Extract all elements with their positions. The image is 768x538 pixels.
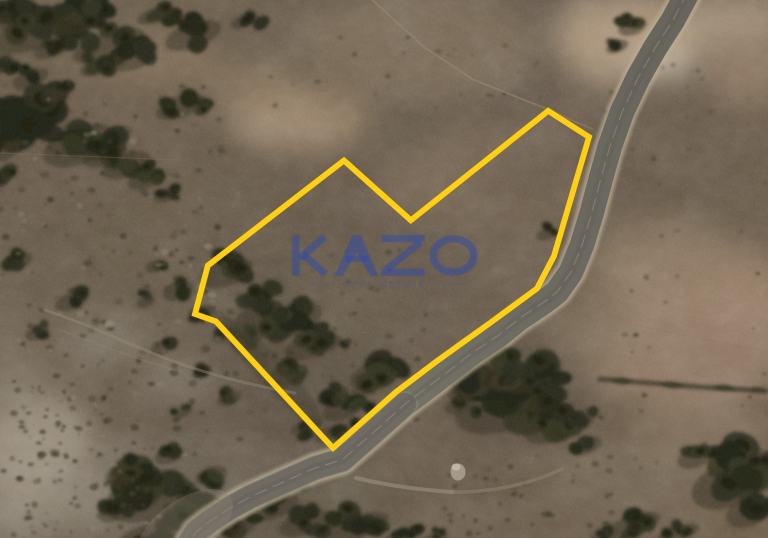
- svg-text:REAL ESTATE: REAL ESTATE: [343, 280, 427, 290]
